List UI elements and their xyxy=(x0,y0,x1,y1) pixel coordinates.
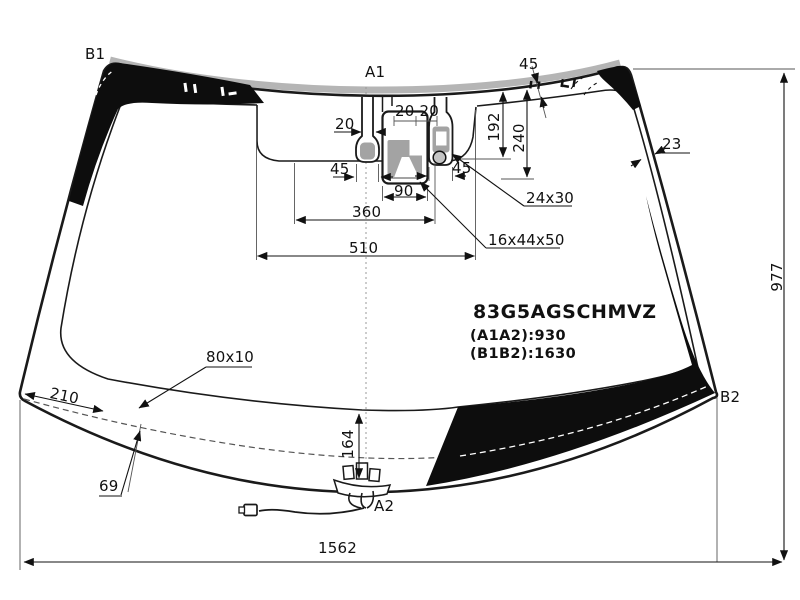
dim-510: 510 xyxy=(349,239,378,257)
dim-240: 240 xyxy=(510,123,528,152)
callout-sensor: 24x30 xyxy=(526,189,574,207)
callout-pad: 80x10 xyxy=(206,348,254,366)
diagram-canvas xyxy=(0,0,800,600)
dim-1562: 1562 xyxy=(318,539,357,557)
point-a2-label: A2 xyxy=(374,497,394,515)
dim-977: 977 xyxy=(768,262,786,291)
dim-360: 360 xyxy=(352,203,381,221)
dim-45-left: 45 xyxy=(330,160,350,178)
wire xyxy=(259,508,364,514)
dim-192: 192 xyxy=(485,112,503,141)
dist-b1b2: (B1B2):1630 xyxy=(470,346,576,362)
dim-45-right: 45 xyxy=(452,159,472,177)
dim-side-band: 23 xyxy=(662,135,682,153)
dist-a1a2: (A1A2):930 xyxy=(470,328,566,344)
point-b1-label: B1 xyxy=(85,45,105,63)
point-a1-label: A1 xyxy=(365,63,385,81)
dim-gaps: 20 20 xyxy=(395,102,439,120)
point-b2-label: B2 xyxy=(720,388,740,406)
wire-connector xyxy=(244,505,257,516)
windshield-diagram: B1 A1 B2 A2 45 20 20 20 192 240 23 45 45… xyxy=(0,0,800,600)
dim-neck: 20 xyxy=(335,115,355,133)
dim-69: 69 xyxy=(99,477,119,495)
dim-90: 90 xyxy=(394,182,414,200)
dim-top-band: 45 xyxy=(519,55,539,73)
dim-164: 164 xyxy=(339,429,357,458)
callout-camera: 16x44x50 xyxy=(488,231,565,249)
part-number: 83G5AGSCHMVZ xyxy=(473,301,657,323)
